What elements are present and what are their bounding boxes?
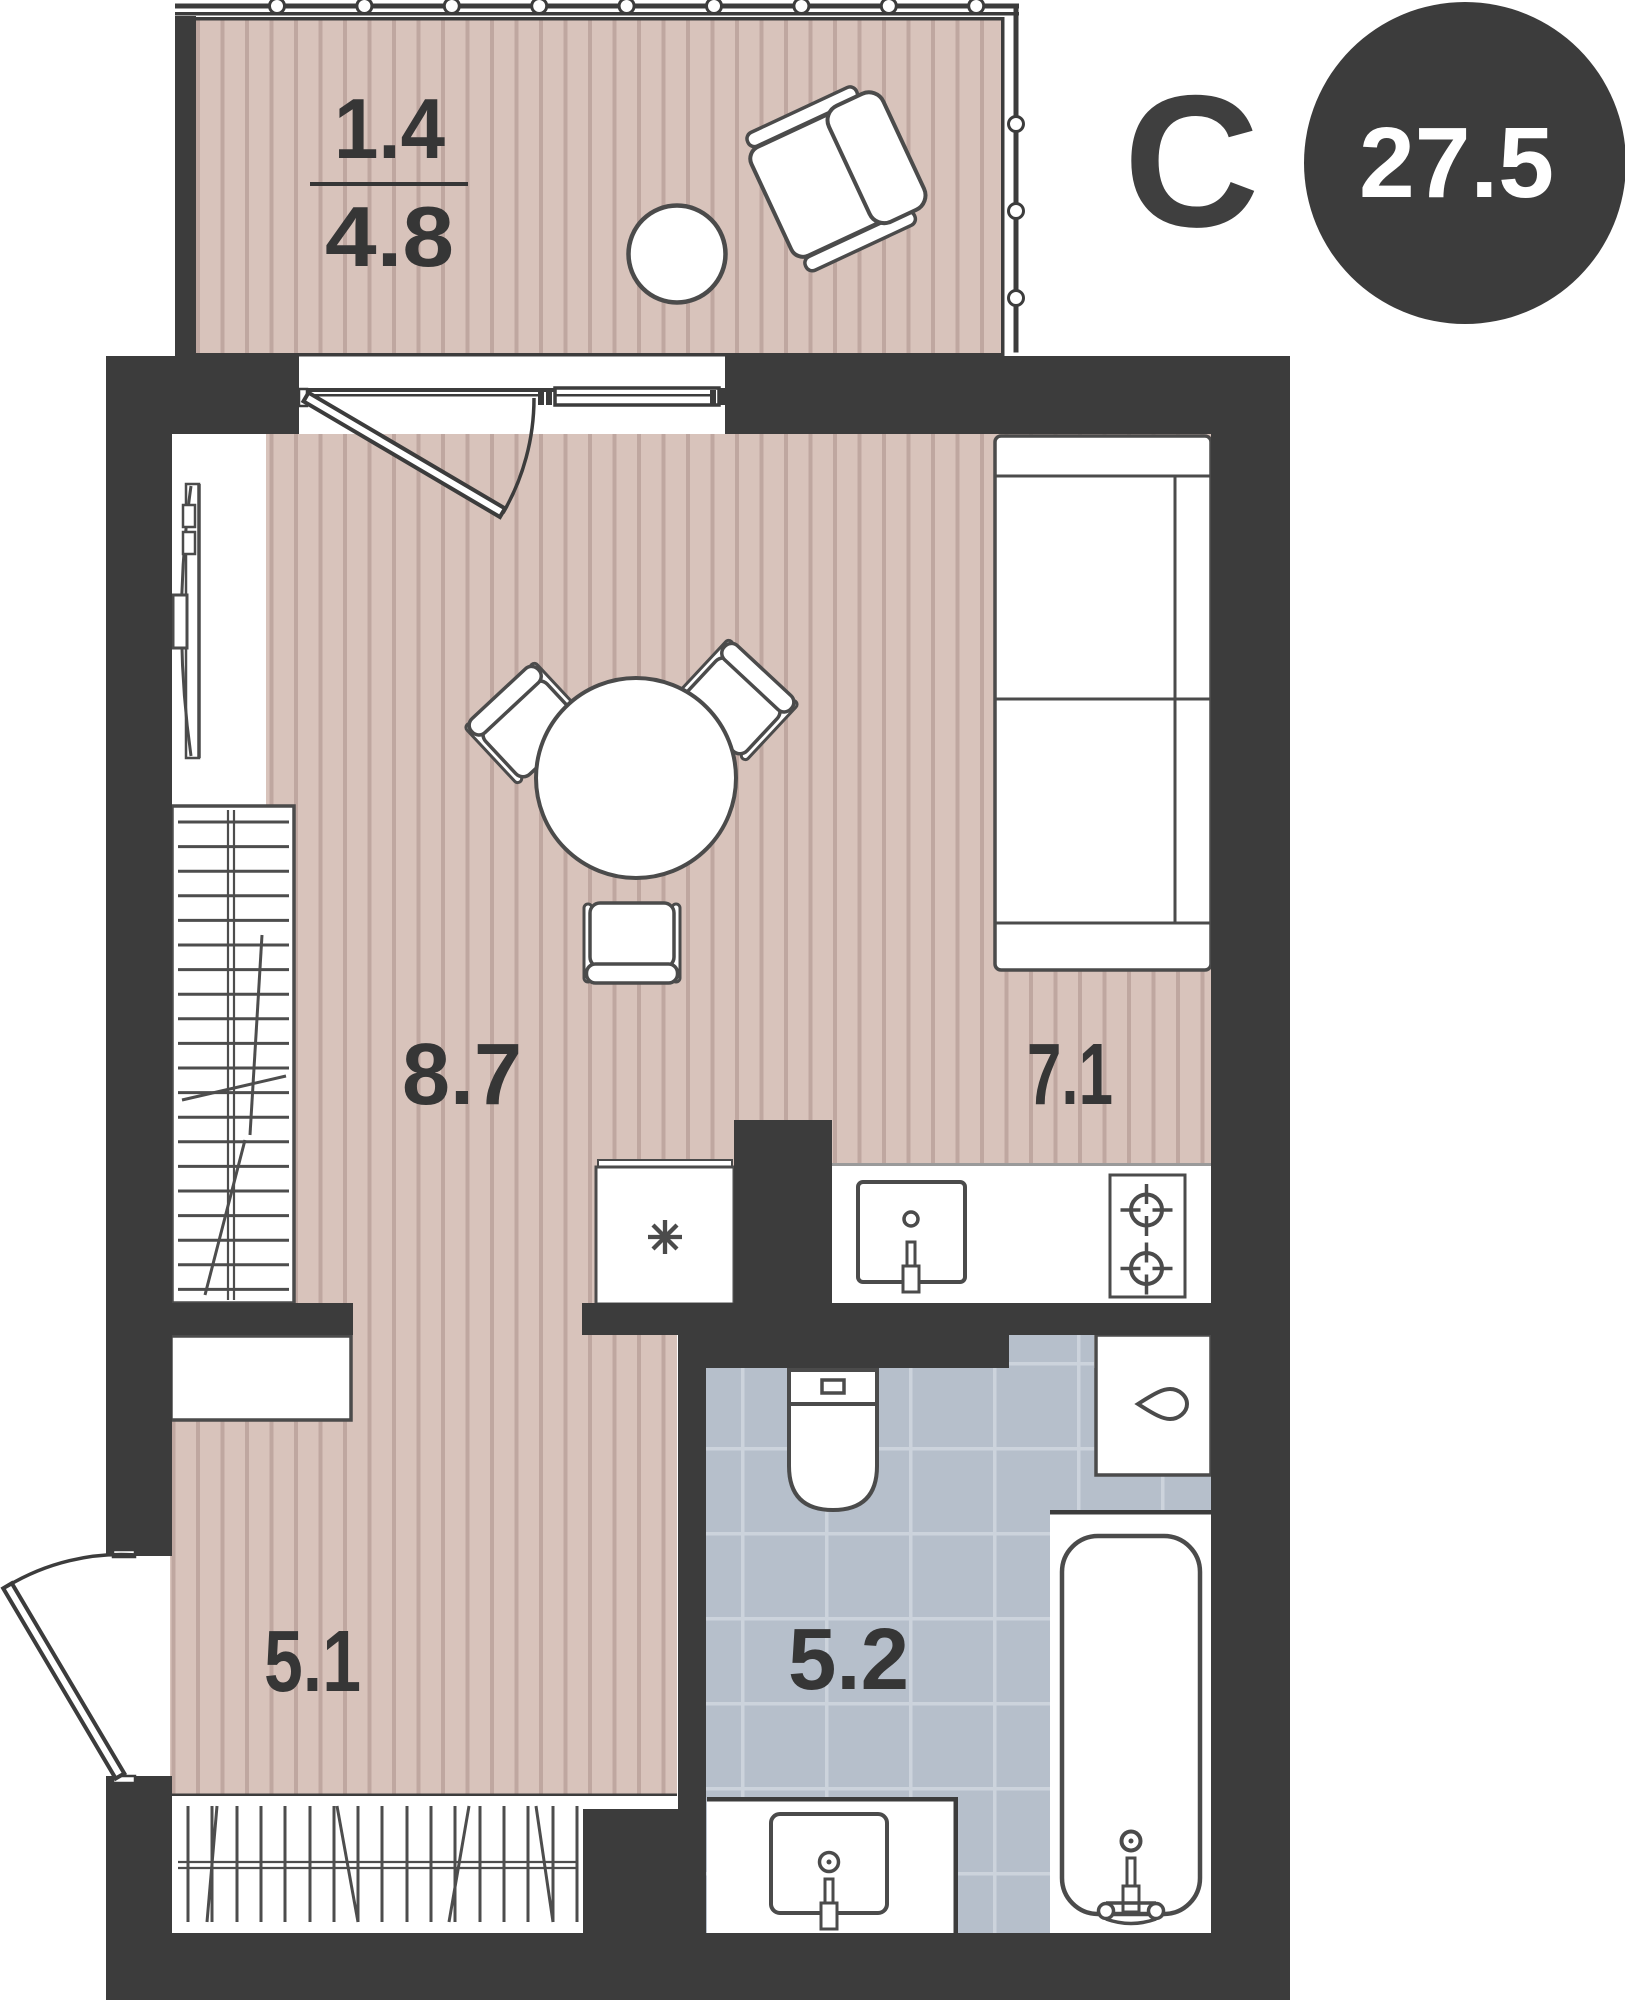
- svg-text:8.7: 8.7: [402, 1026, 522, 1123]
- svg-text:4.8: 4.8: [325, 190, 454, 285]
- svg-text:27.5: 27.5: [1359, 107, 1554, 219]
- svg-text:7.1: 7.1: [1027, 1026, 1113, 1123]
- svg-text:1.4: 1.4: [334, 82, 445, 177]
- svg-text:5.1: 5.1: [264, 1613, 361, 1710]
- svg-text:5.2: 5.2: [788, 1611, 909, 1708]
- svg-text:С: С: [1124, 56, 1260, 266]
